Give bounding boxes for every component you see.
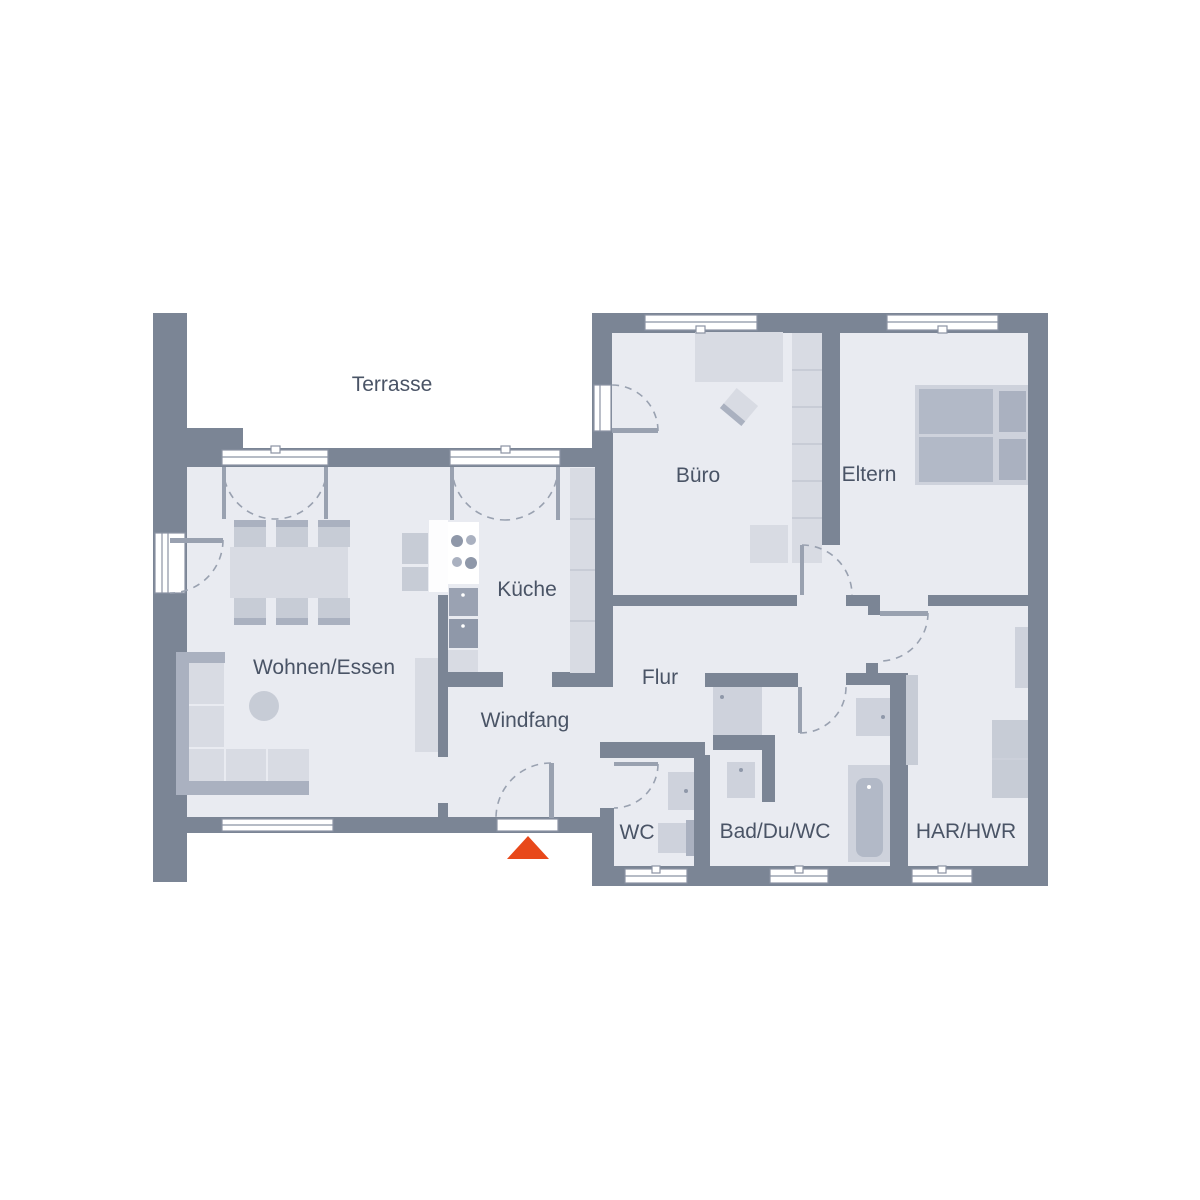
chair-back [276,618,308,625]
sofa-cushion [189,749,224,781]
shelf-strip [906,675,918,765]
wall-eltern-bottom-a [846,595,880,606]
mattress [919,389,993,434]
room-label-buero: Büro [676,464,720,487]
chair-back [276,520,308,527]
wall-corner-step [187,428,243,448]
window-eltern-top [887,315,998,333]
floor-plan-canvas: TerrasseBüroElternKücheWohnen/EssenFlurW… [0,0,1200,1200]
chair-back [234,520,266,527]
oven [449,588,478,616]
window-har-bottom [912,866,972,883]
front-door-opening [497,819,558,831]
burner [451,535,463,547]
wall-bad-har [890,675,908,866]
shower [713,687,762,735]
wall-right-outer [1028,313,1048,886]
wall-buero-eltern [822,333,840,545]
sofa-cushion [268,749,309,781]
window-wc-bottom [625,866,687,883]
wall-stub-a [868,606,880,615]
wall-wc-bad [694,755,710,866]
coffee-table [249,691,279,721]
wall-wc-west [600,808,614,866]
room-label-bad: Bad/Du/WC [720,820,831,843]
toilet-tank [686,820,694,856]
dryer [992,760,1028,798]
terrace-door-buero [594,385,611,431]
kitchen-counter [429,520,448,592]
dishwasher [449,619,478,648]
sofa-back-left [176,655,189,795]
burner [465,557,477,569]
washbasin [668,772,694,810]
wall-shower-v [762,750,775,802]
wall-eltern-bottom-b [928,595,1028,606]
burner [452,557,462,567]
chair-back [234,618,266,625]
kitchen-cabinet [448,650,478,672]
pillow [999,439,1026,480]
room-label-eltern: Eltern [842,463,897,486]
desk [695,332,783,382]
sofa-cushion [226,749,266,781]
wall-wc-top [600,742,705,758]
faucet-dot [739,768,743,772]
oven-dot [461,593,465,597]
wall-buero-bottom [613,595,797,606]
room-label-wohnen: Wohnen/Essen [253,656,395,679]
washbasin [727,762,755,798]
double-bed [915,385,1028,485]
wall-kueche-bottom-b [552,672,613,687]
tub-dot [867,785,871,789]
kitchen-cabinet [402,533,428,564]
kitchen-cabinet [402,567,428,591]
window-living-bottom [222,819,333,831]
room-label-flur: Flur [642,666,678,689]
pillow [999,391,1026,432]
room-label-kueche: Küche [497,578,557,601]
wall-bad-top-a [705,673,798,687]
burner [466,535,476,545]
room-label-har: HAR/HWR [916,820,1016,843]
faucet-dot [684,789,688,793]
chair-back [318,520,350,527]
dining-table [230,547,348,598]
wall-stub-c [438,803,448,817]
sofa-cushion [189,706,224,747]
wall-wohnen-windfang [438,595,448,757]
room-label-terrasse: Terrasse [352,373,433,396]
sofa-back-bottom [176,781,309,795]
entrance-arrow-icon [507,836,549,859]
toilet [658,823,686,853]
window-bad-bottom [770,866,828,883]
office-shelf [792,333,822,563]
bathtub-inner [856,778,883,857]
shower-dot [720,695,724,699]
tall-cabinet [1015,627,1028,688]
office-cabinet [750,525,788,563]
wall-left-outer [153,313,187,882]
mattress [919,437,993,482]
dishwasher-dot [461,624,465,628]
window-buero-top [645,315,757,333]
chair-back [318,618,350,625]
living-cabinet [415,658,438,752]
room-label-windfang: Windfang [481,709,570,732]
sofa-cushion [189,663,224,704]
floor-plan: TerrasseBüroElternKücheWohnen/EssenFlurW… [0,0,1200,1200]
dining-set [230,520,350,625]
washer [992,720,1028,758]
stove [448,522,479,584]
faucet-dot [881,715,885,719]
wall-shower-h [713,735,775,750]
wall-kueche-east [595,432,613,673]
room-label-wc: WC [620,821,655,844]
